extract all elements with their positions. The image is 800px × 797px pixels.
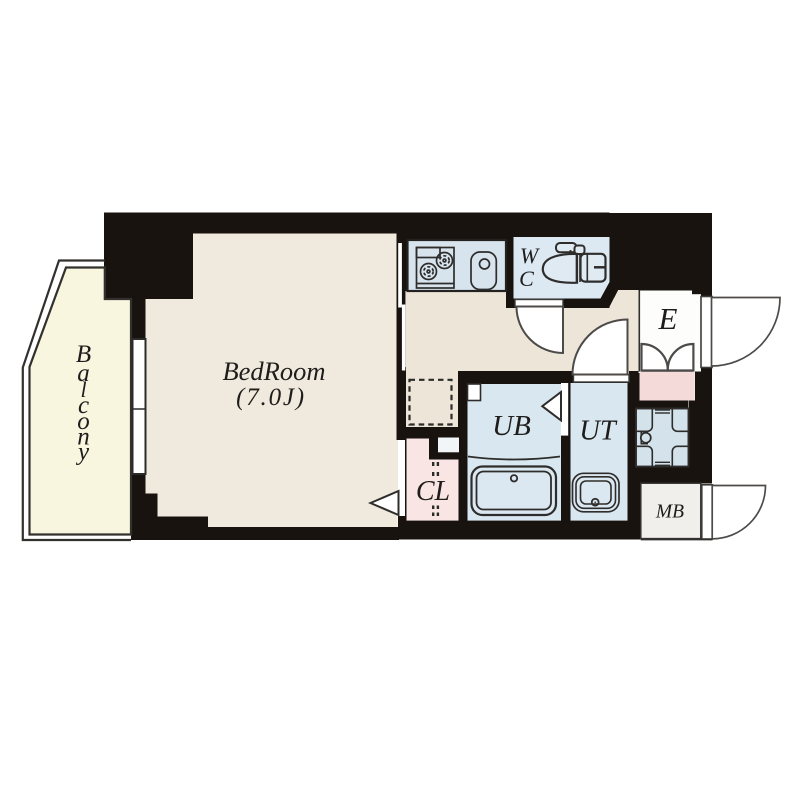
- svg-text:y: y: [75, 439, 90, 466]
- svg-text:W: W: [520, 243, 540, 268]
- svg-text:C: C: [519, 266, 534, 291]
- svg-text:MB: MB: [655, 502, 684, 523]
- svg-text:E: E: [658, 301, 678, 336]
- svg-text:UB: UB: [492, 410, 531, 442]
- svg-text:BedRoom: BedRoom: [222, 356, 325, 386]
- svg-text:CL: CL: [416, 476, 450, 507]
- svg-text:(7.0J): (7.0J): [236, 384, 306, 411]
- svg-text:UT: UT: [579, 416, 618, 447]
